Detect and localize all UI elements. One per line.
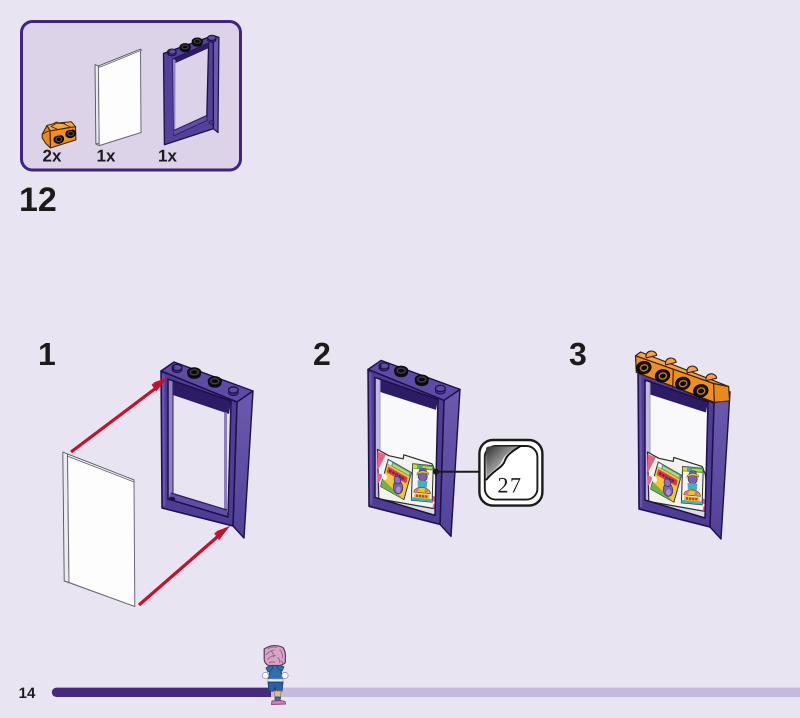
svg-text:3: 3 xyxy=(569,336,587,372)
svg-text:27: 27 xyxy=(497,472,522,497)
svg-text:1x: 1x xyxy=(158,147,177,166)
svg-text:1: 1 xyxy=(38,336,56,372)
svg-text:14: 14 xyxy=(19,685,36,702)
svg-text:12: 12 xyxy=(19,181,57,219)
svg-text:2: 2 xyxy=(313,336,331,372)
svg-text:2x: 2x xyxy=(43,147,62,166)
svg-text:1x: 1x xyxy=(97,147,116,166)
